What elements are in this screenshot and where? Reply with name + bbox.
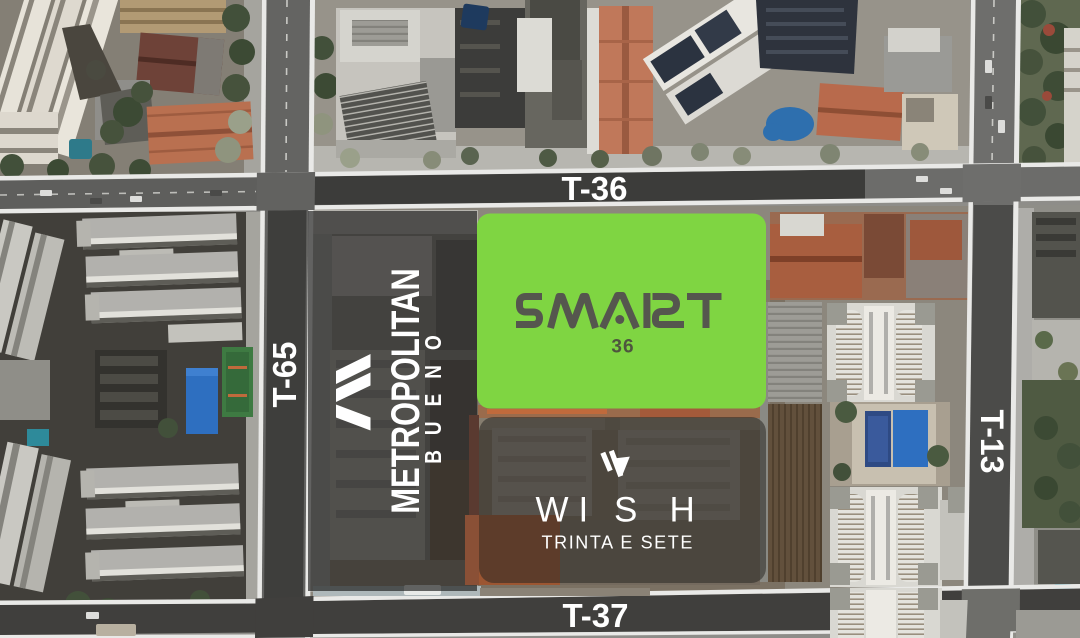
svg-text:BUENO: BUENO [421,320,446,464]
svg-text:T-37: T-37 [562,597,628,634]
svg-text:H: H [670,491,695,530]
svg-text:36: 36 [611,337,634,358]
svg-text:W: W [536,491,569,530]
svg-text:T-13: T-13 [974,409,1010,473]
svg-text:I: I [579,491,589,530]
svg-text:TRINTA E SETE: TRINTA E SETE [542,533,695,553]
svg-text:S: S [614,491,637,530]
svg-text:T-65: T-65 [266,341,303,407]
svg-text:T-36: T-36 [561,170,627,207]
